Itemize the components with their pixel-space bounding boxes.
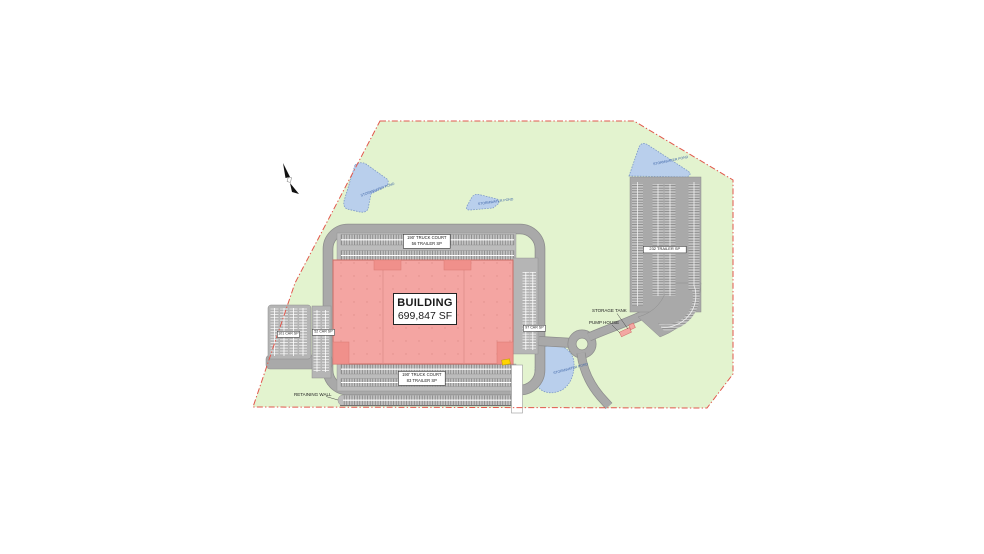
north-bay-block	[444, 260, 471, 270]
north-arrow-icon	[283, 163, 299, 194]
south-truck-court-label: 190' TRUCK COURT 83 TRAILER SP	[398, 371, 446, 386]
north-bay-block	[374, 260, 401, 270]
west-parking-label: 101 CAR SP	[277, 331, 300, 338]
southwest-office-block	[333, 342, 349, 364]
site-plan-canvas: BUILDING 699,847 SF 190' TRUCK COURT 56 …	[0, 0, 984, 554]
south-outer-trailer-strip	[338, 395, 520, 406]
building-label: BUILDING 699,847 SF	[393, 293, 457, 325]
building-title: BUILDING	[394, 297, 456, 309]
storage-tank-label: STORAGE TANK	[592, 309, 627, 314]
site-plan-drawing	[0, 0, 984, 554]
retaining-wall-label: RETAINING WALL	[294, 393, 332, 398]
west-narrow-parking-lot	[312, 306, 331, 378]
yellow-equipment-marker	[502, 359, 511, 365]
east-parking-label: 97 CAR SP	[523, 325, 546, 332]
building-area: 699,847 SF	[394, 310, 456, 322]
trailer-lot-label: 232 TRAILER SP	[643, 246, 687, 253]
south-road-stub	[512, 365, 523, 413]
pump-house-label: PUMP HOUSE	[589, 321, 619, 326]
west-narrow-parking-label: 52 CAR SP	[312, 329, 335, 336]
east-parking-strip	[513, 258, 538, 354]
north-truck-court-label: 190' TRUCK COURT 56 TRAILER SP	[403, 234, 451, 249]
